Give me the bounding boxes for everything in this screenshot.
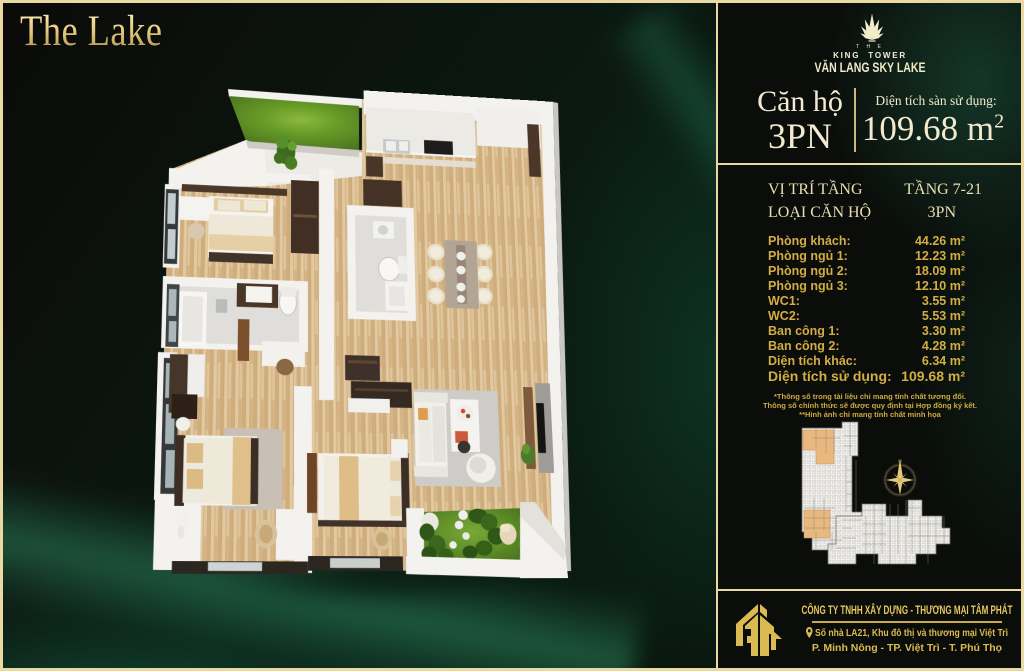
svg-text:N: N bbox=[898, 459, 901, 464]
